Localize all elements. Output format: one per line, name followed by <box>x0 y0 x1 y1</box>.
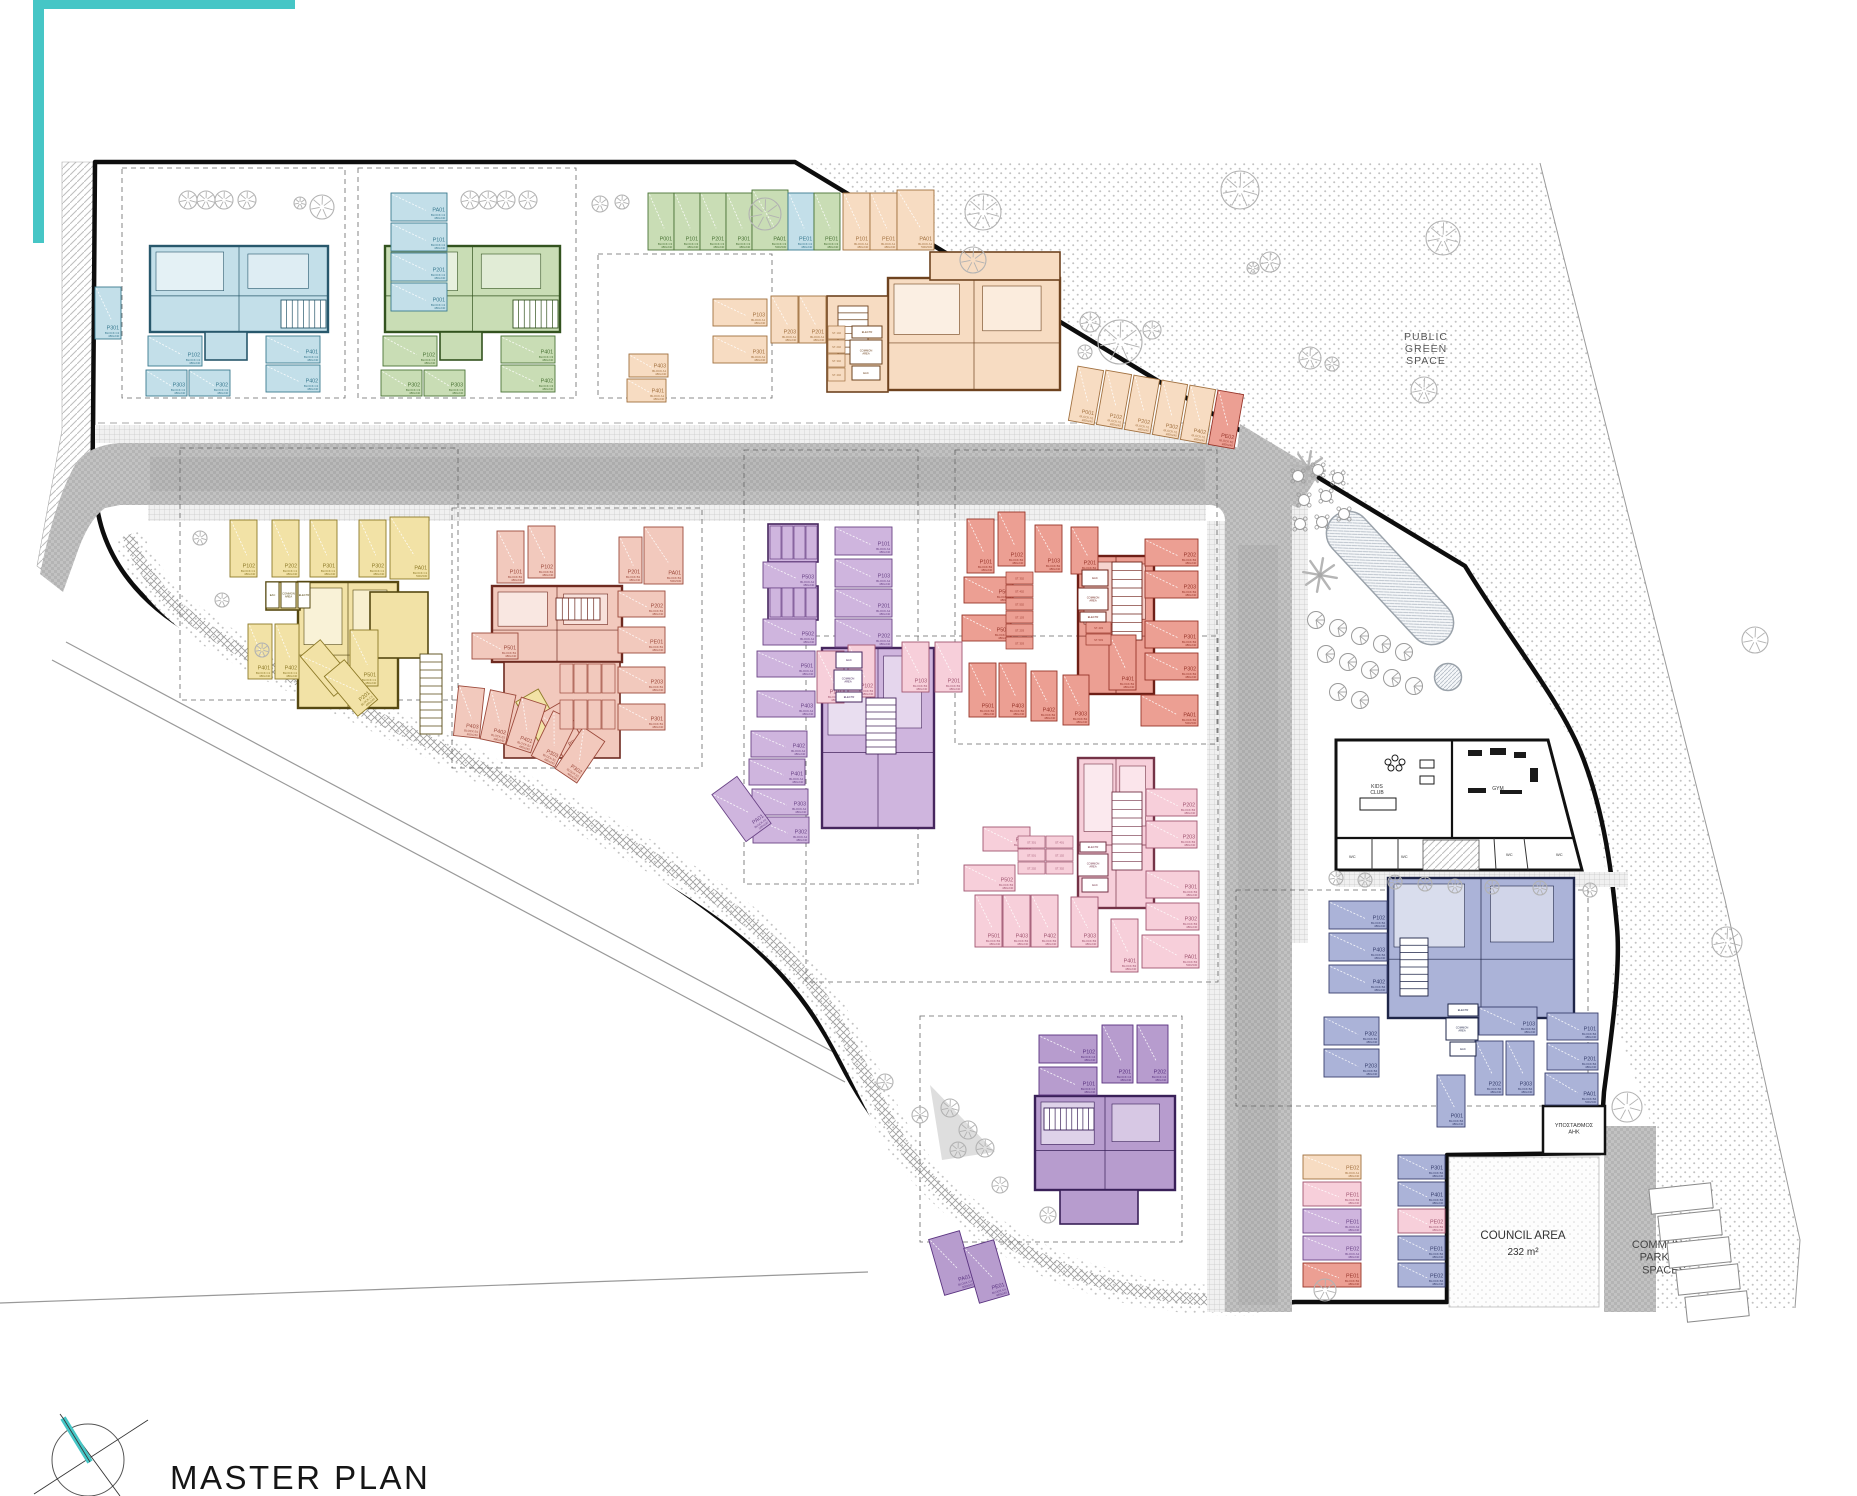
parking-stall-p001-block-c2: P001BLOCK C2480x240 <box>391 283 447 311</box>
sun-lounger-icon <box>1396 644 1413 661</box>
parking-stall-p403-block-b1: P403BLOCK B1480x240 <box>453 686 484 738</box>
parking-stall-p101-block-c4: P101BLOCK C4480x240 <box>1039 1067 1097 1095</box>
parking-stall-p202-block-c1: P202BLOCK C1480x240 <box>272 520 299 577</box>
svg-text:480x240: 480x240 <box>802 712 813 716</box>
svg-text:AREA: AREA <box>844 680 852 684</box>
svg-text:480x240: 480x240 <box>1521 1090 1532 1094</box>
parking-stall-p401-block-b4: P401BLOCK B4480x240 <box>1398 1182 1445 1206</box>
parking-stall-p101-block-c3: P101BLOCK C3480x240 <box>674 193 700 250</box>
svg-text:480x240: 480x240 <box>879 612 890 616</box>
svg-text:480x240: 480x240 <box>796 838 807 842</box>
parking-stall-p402-block-a2: P402BLOCK A2480x240 <box>751 731 807 757</box>
svg-text:480x240: 480x240 <box>542 387 553 391</box>
svg-text:480x240: 480x240 <box>1076 720 1087 724</box>
parking-stall-p401-block-a2: P401BLOCK A2480x240 <box>749 759 805 785</box>
parking-stall-p202-block-a2: P202BLOCK A2480x240 <box>835 619 892 647</box>
parking-stall-p102-block-b1: P102BLOCK B1480x240 <box>528 526 555 578</box>
room-common-area: COMMONAREA <box>834 670 862 690</box>
wc-label: WC <box>1506 852 1513 857</box>
sun-lounger-icon <box>1308 612 1325 629</box>
svg-text:480x240: 480x240 <box>1186 925 1197 929</box>
parking-stall-pa01-block-c1: PA01BLOCK C1500x530 <box>390 517 429 579</box>
svg-text:480x240: 480x240 <box>652 725 663 729</box>
gym-label: GYM <box>1492 786 1503 792</box>
parking-stall-pa01-block-c2: PA01BLOCK C2480x240 <box>391 193 447 221</box>
parking-stall-p301-block-b4: P301BLOCK B4480x240 <box>1398 1155 1445 1179</box>
parking-stall-pe01-block-c3: PE01BLOCK C3480x240 <box>814 193 840 250</box>
tree-icon <box>197 191 215 209</box>
parking-stall-p001-block-c3: P001BLOCK C3480x240 <box>648 193 674 250</box>
svg-text:480x240: 480x240 <box>827 245 838 249</box>
svg-text:480x240: 480x240 <box>652 688 663 692</box>
parking-stall-p103-block-b2: P103BLOCK B2480x240 <box>1035 525 1062 572</box>
svg-text:480x240: 480x240 <box>1348 1201 1359 1205</box>
svg-text:ST. 302: ST. 302 <box>1055 867 1064 871</box>
public-green-space-label: PUBLICGREENSPACE <box>1404 331 1448 367</box>
sun-lounger-icon <box>1362 662 1379 679</box>
svg-text:ELECTR: ELECTR <box>1088 845 1099 849</box>
parking-stall-p102-block-c1: P102BLOCK C1480x240 <box>230 520 257 577</box>
svg-text:480x240: 480x240 <box>286 572 297 576</box>
svg-text:480x240: 480x240 <box>687 245 698 249</box>
spa-pool <box>1435 664 1462 691</box>
svg-text:ST. 403: ST. 403 <box>1094 626 1103 630</box>
svg-text:480x240: 480x240 <box>259 674 270 678</box>
parking-stall-p402-block-c1: P402BLOCK C1480x240 <box>275 624 299 679</box>
room-common-area: COMMONAREA <box>850 340 882 364</box>
svg-text:480x240: 480x240 <box>981 568 992 572</box>
svg-text:480x240: 480x240 <box>189 361 200 365</box>
svg-text:480x240: 480x240 <box>1490 1090 1501 1094</box>
svg-text:ST. 301: ST. 301 <box>1027 841 1036 845</box>
room-eac: EAC <box>1450 1042 1476 1056</box>
parking-stall-p203-block-b4: P203BLOCK B4480x240 <box>1324 1049 1379 1077</box>
svg-text:ELECTR: ELECTR <box>844 695 855 699</box>
svg-text:500x530: 500x530 <box>416 574 427 578</box>
svg-text:AREA: AREA <box>1089 865 1097 869</box>
svg-text:480x240: 480x240 <box>739 245 750 249</box>
parking-stall-p403-block-a2: P403BLOCK A2480x240 <box>757 691 815 717</box>
parking-stall-p201-block-a1: P201BLOCK A1480x240 <box>799 296 826 343</box>
parking-stall-p402-block-c3: P402BLOCK C3480x240 <box>501 365 555 392</box>
svg-text:480x240: 480x240 <box>424 361 435 365</box>
parking-stall-p403-block-b3: P403BLOCK B3480x240 <box>1003 895 1030 947</box>
svg-text:480x240: 480x240 <box>434 216 445 220</box>
sun-lounger-icon <box>1330 684 1347 701</box>
north-compass <box>34 1414 148 1496</box>
svg-text:480x240: 480x240 <box>652 648 663 652</box>
svg-text:480x240: 480x240 <box>754 321 765 325</box>
svg-text:480x240: 480x240 <box>1185 643 1196 647</box>
svg-text:ST. 402: ST. 402 <box>832 373 841 377</box>
parking-stall-p303-block-c2: P303BLOCK C2480x240 <box>146 370 187 396</box>
sun-lounger-icon <box>1406 678 1423 695</box>
tree-icon <box>1040 1207 1056 1223</box>
parking-stall-pa01-block-a1: PA01BLOCK A1500x530 <box>897 190 934 250</box>
svg-text:480x240: 480x240 <box>1585 1065 1596 1069</box>
parking-stall-p201-block-c2: P201BLOCK C2480x240 <box>391 253 447 281</box>
parking-stall-p401-block-c3: P401BLOCK C3480x240 <box>501 336 555 363</box>
room-eac: EAC <box>836 652 862 668</box>
room-common-area: COMMONAREA <box>1078 588 1108 610</box>
tree-icon <box>1078 345 1092 359</box>
parking-stall-p301-block-c1: P301BLOCK C1480x240 <box>310 520 337 577</box>
parking-stall-p402-block-b2: P402BLOCK B2480x240 <box>1031 671 1057 721</box>
svg-text:EAC: EAC <box>1460 1047 1466 1051</box>
parking-stall-p502-block-b3: P502BLOCK B3480x240 <box>964 865 1015 891</box>
svg-text:480x240: 480x240 <box>174 391 185 395</box>
svg-text:480x240: 480x240 <box>244 572 255 576</box>
parking-stall-p101-block-b2: P101BLOCK B2480x240 <box>967 519 994 573</box>
parking-stall-p302-block-c2: P302BLOCK C2480x240 <box>189 370 230 396</box>
svg-text:480x240: 480x240 <box>1185 561 1196 565</box>
tree-icon <box>1612 1092 1642 1122</box>
parking-stall-p203-block-a1: P203BLOCK A1480x240 <box>771 296 798 343</box>
room-common-area: COMMONAREA <box>281 582 296 608</box>
parking-stall-p403-block-b4: P403BLOCK B4480x240 <box>1329 933 1387 961</box>
room-common-area: COMMONAREA <box>1446 1018 1478 1040</box>
parking-stall-p402-block-b3: P402BLOCK B3480x240 <box>1031 895 1058 947</box>
svg-text:480x240: 480x240 <box>857 245 868 249</box>
parking-stall-p201-block-a2: P201BLOCK A2480x240 <box>835 589 892 617</box>
svg-text:480x240: 480x240 <box>803 583 814 587</box>
room-electr: ELECTR <box>836 692 862 702</box>
parking-stall-p103-block-a1: P103BLOCK A1480x240 <box>713 299 767 326</box>
svg-text:480x240: 480x240 <box>1432 1201 1443 1205</box>
parking-stall-p301-block-c3: P301BLOCK C3480x240 <box>726 193 752 250</box>
svg-text:480x240: 480x240 <box>813 338 824 342</box>
parking-stall-p102-block-b2: P102BLOCK B2480x240 <box>998 512 1025 566</box>
parking-stall-p103-block-b3: P103BLOCK B3480x240 <box>902 642 929 692</box>
tree-icon <box>310 195 334 219</box>
parking-stall-p401-block-b2: P401BLOCK B2480x240 <box>1109 635 1136 690</box>
svg-text:480x240: 480x240 <box>794 752 805 756</box>
svg-text:480x240: 480x240 <box>884 245 895 249</box>
svg-text:480x240: 480x240 <box>511 578 522 582</box>
room-eac: EAC <box>266 582 279 608</box>
tree-icon <box>179 191 197 209</box>
svg-text:480x240: 480x240 <box>983 712 994 716</box>
road-council-strip <box>1604 1126 1656 1312</box>
room-electr: ELECTR <box>1080 842 1106 852</box>
svg-text:480x240: 480x240 <box>1432 1255 1443 1259</box>
svg-text:480x240: 480x240 <box>989 942 1000 946</box>
svg-text:ST. 103: ST. 103 <box>1015 616 1024 620</box>
svg-text:EAC: EAC <box>270 593 276 597</box>
svg-text:480x240: 480x240 <box>217 391 228 395</box>
parking-stall-p202-block-b2: P202BLOCK B2480x240 <box>1145 539 1198 566</box>
svg-text:480x240: 480x240 <box>434 246 445 250</box>
svg-text:EAC: EAC <box>1092 883 1098 887</box>
svg-text:ST. 202: ST. 202 <box>1027 867 1036 871</box>
svg-text:480x240: 480x240 <box>801 245 812 249</box>
svg-text:480x240: 480x240 <box>1374 988 1385 992</box>
parking-stall-p203-block-b3: P203BLOCK B3480x240 <box>1146 821 1197 848</box>
svg-text:480x240: 480x240 <box>1374 924 1385 928</box>
svg-text:ST. 502: ST. 502 <box>1015 603 1024 607</box>
svg-text:480x240: 480x240 <box>1348 1174 1359 1178</box>
tree-icon <box>215 593 229 607</box>
wc-label: WC <box>1556 852 1563 857</box>
svg-text:ST. 302: ST. 302 <box>832 359 841 363</box>
svg-text:480x240: 480x240 <box>785 338 796 342</box>
parking-stall-p202-block-b4: P202BLOCK B4480x240 <box>1475 1041 1503 1095</box>
parking-stall-p102-block-c2: P102BLOCK C2480x240 <box>148 336 202 366</box>
parking-stall-pe02-block-b3: PE02BLOCK B3480x240 <box>1398 1209 1445 1233</box>
parking-stall-pe01-block-b4: PE01BLOCK B4480x240 <box>1398 1236 1445 1260</box>
parking-stall-p302-block-c1: P302BLOCK C1480x240 <box>359 520 386 577</box>
parking-stall-p302-block-b2: P302BLOCK B2480x240 <box>1145 653 1198 680</box>
sun-lounger-icon <box>1384 670 1401 687</box>
svg-text:480x240: 480x240 <box>1155 1078 1166 1082</box>
svg-text:AREA: AREA <box>1089 599 1097 603</box>
parking-stall-p301-block-a1: P301BLOCK A1480x240 <box>713 336 767 363</box>
svg-text:480x240: 480x240 <box>795 810 806 814</box>
parking-stall-p502-block-a2: P502BLOCK A2480x240 <box>763 619 816 645</box>
tree-icon <box>479 191 497 209</box>
sun-lounger-icon <box>1330 620 1347 637</box>
svg-text:480x240: 480x240 <box>307 387 318 391</box>
parking-stall-p502-block-b2: P502BLOCK B2480x240 <box>962 615 1011 641</box>
parking-stall-p101-block-a2: P101BLOCK A2480x240 <box>835 527 892 555</box>
svg-text:480x240: 480x240 <box>1049 567 1060 571</box>
tree-icon <box>193 531 207 545</box>
svg-text:500x530: 500x530 <box>1186 963 1197 967</box>
svg-text:480x240: 480x240 <box>1013 712 1024 716</box>
svg-text:480x240: 480x240 <box>1348 1255 1359 1259</box>
svg-text:480x240: 480x240 <box>1432 1228 1443 1232</box>
svg-text:480x240: 480x240 <box>1045 942 1056 946</box>
parking-stall-p401-block-b3: P401BLOCK B3480x240 <box>1111 919 1138 972</box>
parking-stall-p202-block-b1: P202BLOCK B1480x240 <box>618 591 665 617</box>
tree-icon <box>615 195 629 209</box>
parking-stall-p301-block-b1: P301BLOCK B1480x240 <box>618 704 665 730</box>
wc-label: WC <box>1349 854 1356 859</box>
svg-text:480x240: 480x240 <box>1125 967 1136 971</box>
parking-stall-p201-block-b1: P201BLOCK B1480x240 <box>619 537 642 583</box>
svg-text:480x240: 480x240 <box>1084 1090 1095 1094</box>
parking-stall-pe01-block-a2: PE01BLOCK A2480x240 <box>1303 1209 1361 1233</box>
parking-stall-p203-block-b2: P203BLOCK B2480x240 <box>1145 571 1198 598</box>
storage-stall-group-block-b3: ST. 301ST. 401ST. 501ST. 102ST. 202ST. 3… <box>1018 836 1073 874</box>
svg-text:480x240: 480x240 <box>879 582 890 586</box>
svg-text:AREA: AREA <box>862 352 870 356</box>
parking-stall-pe02-block-a2: PE02BLOCK A2480x240 <box>1303 1236 1361 1260</box>
parking-stall-p402-block-b4: P402BLOCK B4480x240 <box>1329 965 1387 993</box>
council-area-size: 232 m² <box>1507 1247 1539 1258</box>
parking-stall-pe01-block-b2: PE01BLOCK B2480x240 <box>1303 1263 1361 1287</box>
svg-text:500x530: 500x530 <box>775 245 786 249</box>
tree-icon <box>1742 627 1768 653</box>
parking-stall-p302-block-c3: P302BLOCK C3480x240 <box>381 370 422 396</box>
parking-stall-p501-block-b3: P501BLOCK B3480x240 <box>975 895 1002 947</box>
parking-stall-p403-block-a1: P403BLOCK A1480x240 <box>629 354 668 377</box>
svg-text:480x240: 480x240 <box>1366 1072 1377 1076</box>
svg-text:480x240: 480x240 <box>1185 593 1196 597</box>
svg-text:480x240: 480x240 <box>1184 811 1195 815</box>
svg-text:ST. 503: ST. 503 <box>1094 638 1103 642</box>
parking-stall-pa01-block-b1: PA01BLOCK B1500x530 <box>644 527 683 584</box>
svg-text:480x240: 480x240 <box>434 306 445 310</box>
svg-text:ST. 402: ST. 402 <box>1015 590 1024 594</box>
svg-text:ELECTR: ELECTR <box>1088 615 1099 619</box>
svg-text:480x240: 480x240 <box>916 687 927 691</box>
sun-lounger-icon <box>1340 654 1357 671</box>
parking-stall-p501-block-a2: P501BLOCK A2480x240 <box>757 651 815 677</box>
svg-text:480x240: 480x240 <box>1432 1174 1443 1178</box>
svg-text:ST. 202: ST. 202 <box>832 345 841 349</box>
room-electr: ELECTR <box>852 326 882 338</box>
parking-stall-p102-block-c4: P102BLOCK C4480x240 <box>1039 1035 1097 1063</box>
svg-text:480x240: 480x240 <box>1184 843 1195 847</box>
svg-text:480x240: 480x240 <box>879 642 890 646</box>
svg-text:480x240: 480x240 <box>409 391 420 395</box>
svg-text:ELECTR: ELECTR <box>862 330 873 334</box>
tree-icon <box>519 191 537 209</box>
svg-text:480x240: 480x240 <box>1002 886 1013 890</box>
svg-text:480x240: 480x240 <box>862 692 873 696</box>
svg-text:480x240: 480x240 <box>1348 1228 1359 1232</box>
parking-stall-p101-block-c2: P101BLOCK C2480x240 <box>391 223 447 251</box>
svg-text:500x530: 500x530 <box>1585 1100 1596 1104</box>
svg-text:ST. 102: ST. 102 <box>1055 854 1064 858</box>
parking-stall-p201-block-b2: P201BLOCK B2480x240 <box>1071 527 1098 574</box>
parking-stall-p401-block-c2: P401BLOCK C2480x240 <box>266 336 320 363</box>
parking-stall-p301-block-b2: P301BLOCK B2480x240 <box>1145 621 1198 648</box>
tree-icon <box>497 191 515 209</box>
svg-text:480x240: 480x240 <box>754 358 765 362</box>
parking-stall-p103-block-b4: P103BLOCK B4480x240 <box>1479 1007 1537 1035</box>
svg-text:480x240: 480x240 <box>803 640 814 644</box>
parking-stall-p103-block-a2: P103BLOCK A2480x240 <box>835 559 892 587</box>
svg-text:500x530: 500x530 <box>670 579 681 583</box>
svg-text:ST. 501: ST. 501 <box>1027 854 1036 858</box>
sun-lounger-icon <box>1352 628 1369 645</box>
tree-icon <box>592 196 608 212</box>
svg-text:480x240: 480x240 <box>365 681 376 685</box>
svg-text:480x240: 480x240 <box>1012 561 1023 565</box>
svg-text:480x240: 480x240 <box>1432 1282 1443 1286</box>
parking-stall-pe01-block-a1: PE01BLOCK A1480x240 <box>870 193 897 250</box>
svg-text:480x240: 480x240 <box>542 573 553 577</box>
svg-text:480x240: 480x240 <box>949 687 960 691</box>
sun-lounger-icon <box>1374 636 1391 653</box>
svg-text:AREA: AREA <box>1458 1029 1466 1033</box>
svg-text:480x240: 480x240 <box>1017 942 1028 946</box>
parking-stall-p303-block-b3: P303BLOCK B3480x240 <box>1071 897 1098 947</box>
parking-stall-p503-block-a2: P503BLOCK A2480x240 <box>763 562 816 588</box>
pergola <box>1423 840 1479 870</box>
parking-stall-p202-block-c4: P202BLOCK C4480x240 <box>1137 1025 1168 1083</box>
svg-text:500x530: 500x530 <box>921 245 932 249</box>
svg-text:480x240: 480x240 <box>1084 1058 1095 1062</box>
parking-stall-pe01-block-b3: PE01BLOCK B3480x240 <box>1303 1182 1361 1206</box>
room-electr: ELECTR <box>1080 612 1106 622</box>
parking-stall-p101-block-a1: P101BLOCK A1480x240 <box>843 193 870 250</box>
tree-icon <box>215 191 233 209</box>
parking-stall-p201-block-b3: P201BLOCK B3480x240 <box>935 642 962 692</box>
room-eac: EAC <box>852 366 880 380</box>
svg-text:480x240: 480x240 <box>1123 685 1134 689</box>
parking-stall-p201-block-b4: P201BLOCK B4480x240 <box>1547 1043 1598 1070</box>
tree-icon <box>992 1177 1008 1193</box>
parking-stall-p001-block-b4: P001BLOCK B4480x240 <box>1437 1075 1465 1127</box>
svg-text:ST. 203: ST. 203 <box>1015 629 1024 633</box>
svg-text:480x240: 480x240 <box>1585 1035 1596 1039</box>
parking-stall-p303-block-b2: P303BLOCK B2480x240 <box>1063 675 1089 725</box>
parking-stall-p501-block-b2: P501BLOCK B2480x240 <box>969 663 996 717</box>
parking-stall-pe02-block-b4: PE02BLOCK B4480x240 <box>1398 1263 1445 1287</box>
parking-stall-pe01-block-c2: PE01BLOCK C2480x240 <box>788 193 814 250</box>
master-plan-drawing: PUBLICGREENSPACE <box>0 0 1857 1496</box>
tree-icon <box>461 191 479 209</box>
svg-text:480x240: 480x240 <box>1120 1078 1131 1082</box>
svg-text:ST. 102: ST. 102 <box>832 331 841 335</box>
parking-stall-p102-block-c3: P102BLOCK C3480x240 <box>383 336 437 366</box>
parking-stall-pa01-block-b2: PA01BLOCK B2500x530 <box>1141 695 1198 726</box>
parking-stall-p301-block-b3: P301BLOCK B3480x240 <box>1146 871 1199 898</box>
svg-text:480x240: 480x240 <box>1085 942 1096 946</box>
svg-text:480x240: 480x240 <box>452 391 463 395</box>
svg-text:480x240: 480x240 <box>802 672 813 676</box>
svg-text:480x240: 480x240 <box>1186 893 1197 897</box>
svg-text:ST. 303: ST. 303 <box>1015 642 1024 646</box>
svg-text:480x240: 480x240 <box>1348 1282 1359 1286</box>
parking-stall-p303-block-b4: P303BLOCK B4480x240 <box>1506 1041 1534 1095</box>
svg-text:480x240: 480x240 <box>1374 956 1385 960</box>
room-eac: EAC <box>1082 570 1108 586</box>
tree-icon <box>294 197 306 209</box>
parking-stall-p402-block-c2: P402BLOCK C2480x240 <box>266 365 320 392</box>
svg-text:480x240: 480x240 <box>1366 1040 1377 1044</box>
palm-tree-icon <box>1303 558 1336 591</box>
sun-lounger-icon <box>1318 646 1335 663</box>
svg-text:480x240: 480x240 <box>653 397 664 401</box>
room-electr: ELECTR <box>1448 1004 1478 1016</box>
parking-stall-pa01-block-b3: PA01BLOCK B3500x530 <box>1142 935 1199 968</box>
parking-stall-p303-block-c3: P303BLOCK C3480x240 <box>424 370 465 396</box>
svg-text:480x240: 480x240 <box>661 245 672 249</box>
parking-stall-p101-block-b4: P101BLOCK B4480x240 <box>1547 1013 1598 1040</box>
svg-text:ST. 302: ST. 302 <box>1015 577 1024 581</box>
svg-text:ELECTR: ELECTR <box>1458 1008 1469 1012</box>
tree-icon <box>1314 1279 1336 1301</box>
svg-text:480x240: 480x240 <box>1044 716 1055 720</box>
parking-stall-p302-block-b4: P302BLOCK B4480x240 <box>1324 1017 1379 1045</box>
room-eac: EAC <box>1082 878 1108 892</box>
parking-stall-pa01-block-b4: PA01BLOCK B4500x530 <box>1545 1073 1598 1105</box>
building-block-b4 <box>1388 878 1574 1018</box>
svg-text:480x240: 480x240 <box>1452 1122 1463 1126</box>
page-title: MASTER PLAN <box>170 1459 430 1496</box>
parking-stall-p101-block-b1: P101BLOCK B1480x240 <box>497 531 524 583</box>
wc-label: WC <box>1401 854 1408 859</box>
council-area-label: COUNCIL AREA <box>1480 1230 1566 1242</box>
svg-text:500x530: 500x530 <box>1185 721 1196 725</box>
parking-stall-p203-block-b1: P203BLOCK B1480x240 <box>618 667 665 693</box>
svg-text:480x240: 480x240 <box>434 276 445 280</box>
table-icon <box>1319 489 1333 503</box>
svg-text:480x240: 480x240 <box>1524 1030 1535 1034</box>
tree-icon <box>238 191 256 209</box>
svg-text:480x240: 480x240 <box>286 674 297 678</box>
parking-stall-p201-block-c4: P201BLOCK C4480x240 <box>1102 1025 1133 1083</box>
svg-text:EAC: EAC <box>863 371 869 375</box>
sun-lounger-icon <box>1352 692 1369 709</box>
svg-text:480x240: 480x240 <box>879 550 890 554</box>
svg-text:480x240: 480x240 <box>629 578 640 582</box>
clubhouse-building: KIDSCLUB GYM WC WC WC WC <box>1336 740 1582 870</box>
